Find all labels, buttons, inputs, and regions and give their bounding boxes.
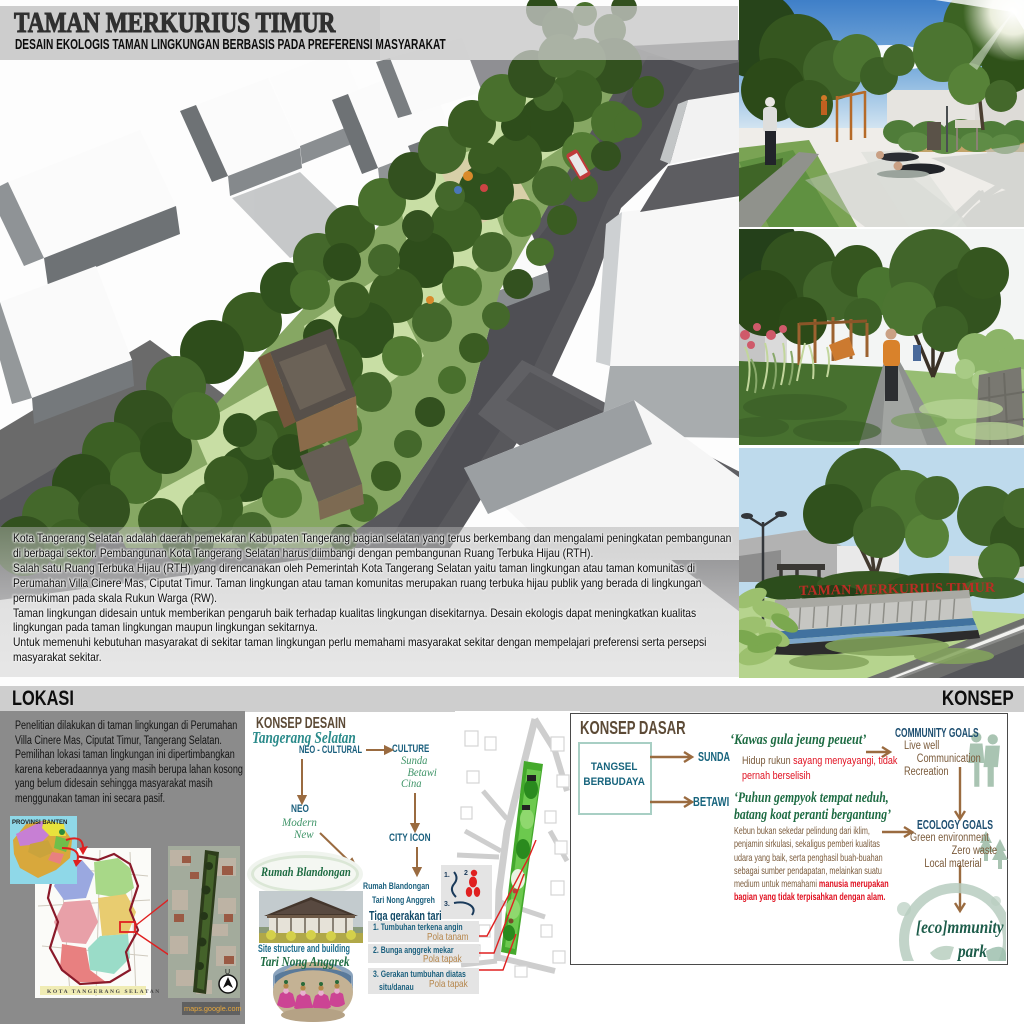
svg-text:1.: 1. [444, 872, 450, 879]
svg-text:2: 2 [464, 870, 468, 877]
svg-text:PROVINSI BANTEN: PROVINSI BANTEN [12, 820, 67, 826]
svg-text:U: U [225, 969, 230, 976]
svg-text:3.: 3. [444, 901, 450, 908]
svg-text:maps.google.com: maps.google.com [184, 1004, 242, 1013]
svg-text:KOTA TANGERANG SELATAN: KOTA TANGERANG SELATAN [47, 989, 161, 995]
